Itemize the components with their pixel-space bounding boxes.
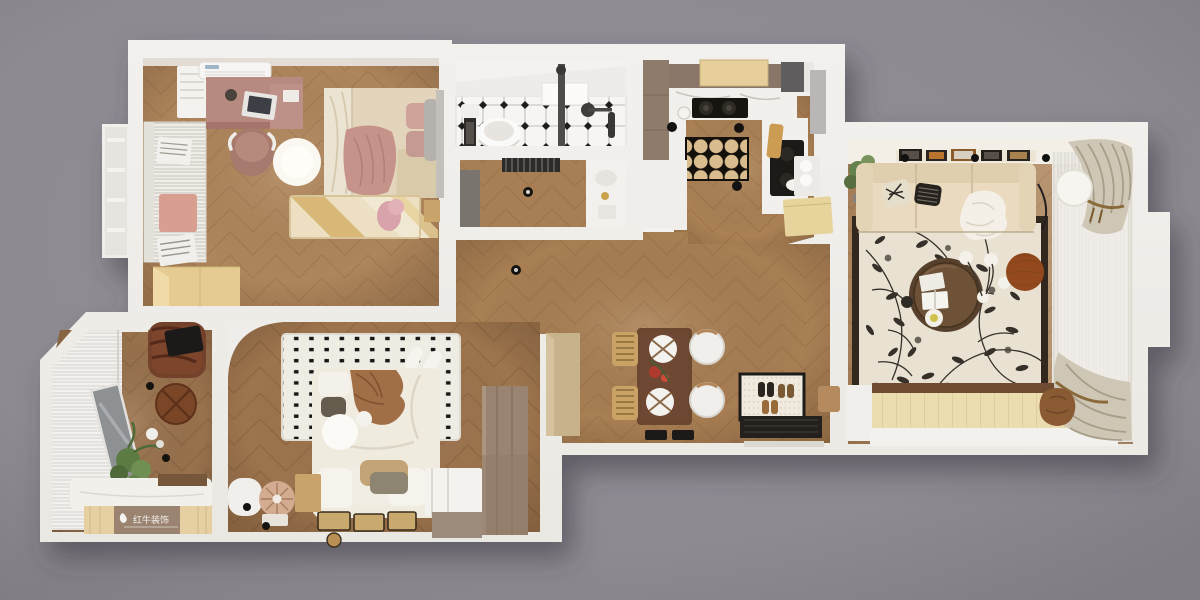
svg-text:红牛装饰: 红牛装饰 [133, 514, 169, 525]
